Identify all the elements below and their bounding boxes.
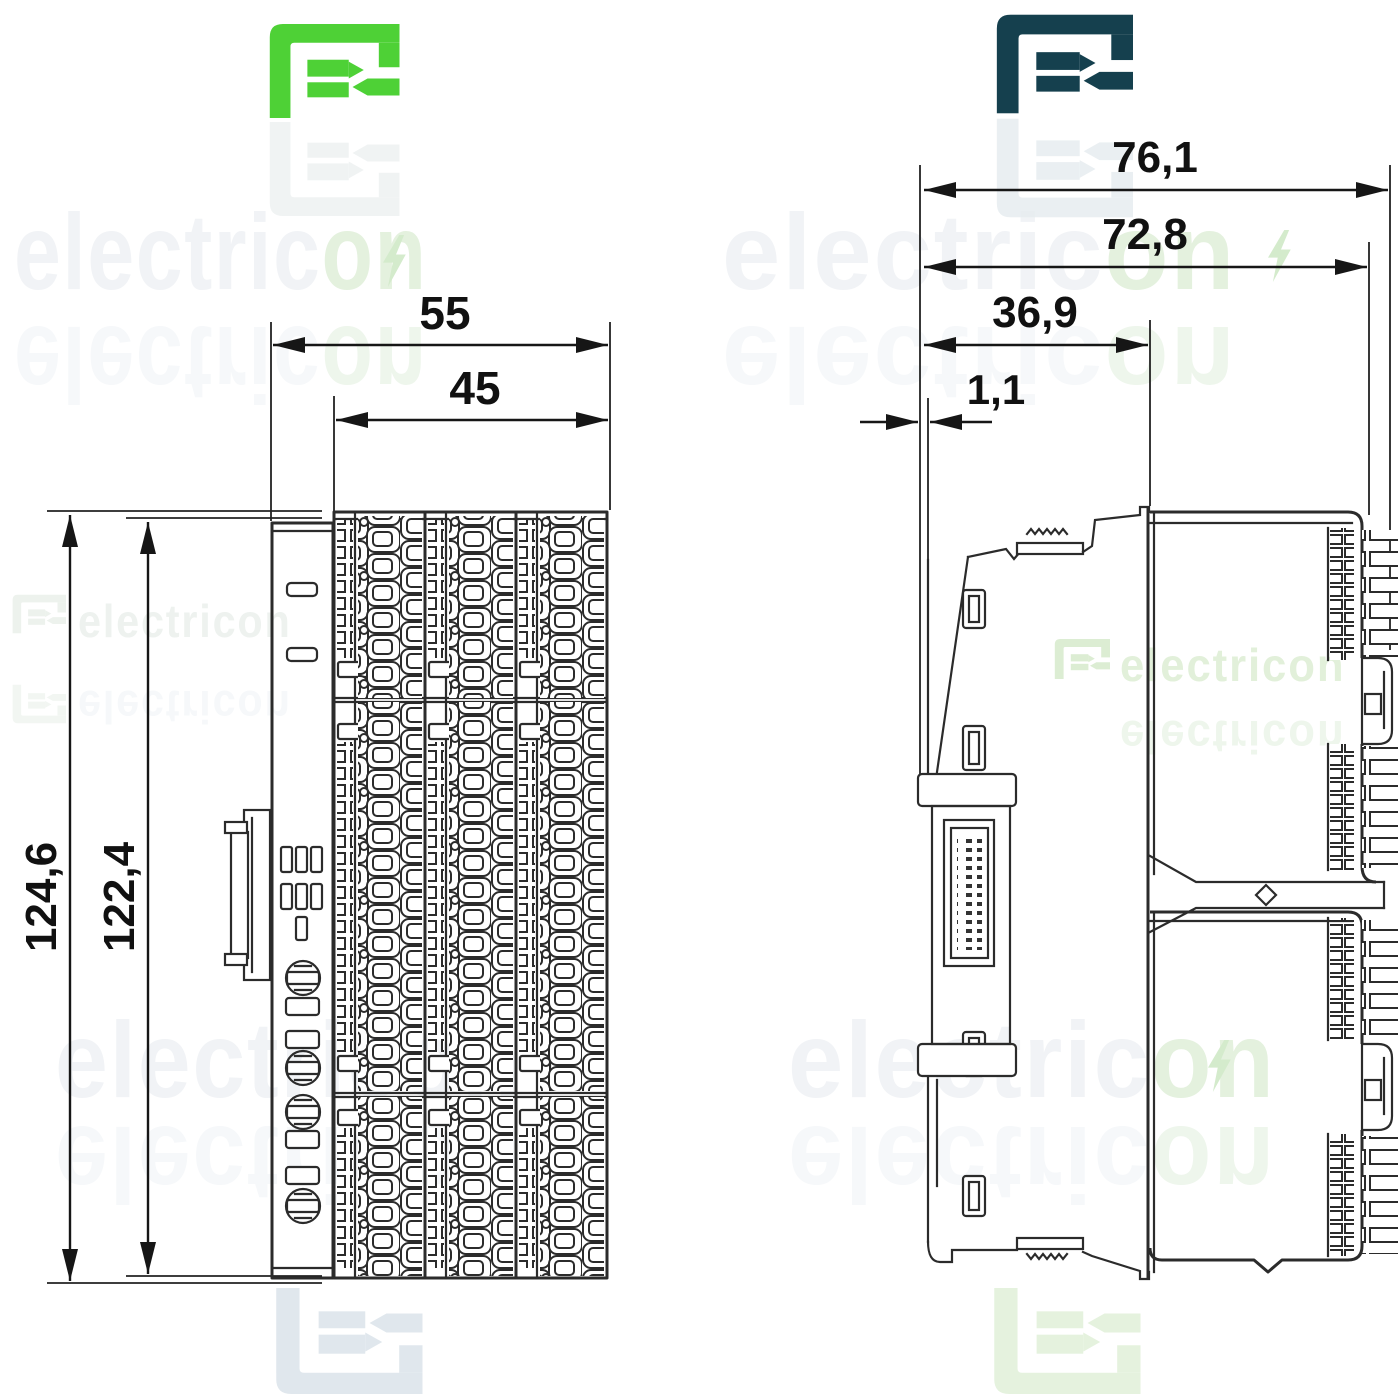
- dimension-depth-front: 36,9: [924, 288, 1148, 345]
- din-clip-lower: [1362, 1044, 1392, 1130]
- terminal-column: [425, 512, 516, 1278]
- dimension-label-1-1: 1,1: [967, 366, 1025, 413]
- dimension-height-inner: 122,4: [95, 522, 148, 1274]
- bus-connector-bracket: [918, 774, 1016, 1076]
- dimension-depth-body: 72,8: [924, 210, 1367, 267]
- dimension-label-55: 55: [419, 287, 470, 339]
- led-indicator-grid: [281, 847, 322, 940]
- dimension-label-45: 45: [449, 362, 500, 414]
- terminal-column: [516, 512, 607, 1278]
- dimension-label-122-4: 122,4: [95, 841, 144, 952]
- panel-slot: [287, 583, 317, 596]
- side-view-drawing: 76,1 72,8 36,9 1,1: [860, 133, 1398, 1280]
- dimension-offset-rear: 1,1: [860, 366, 1025, 422]
- terminal-columns: [334, 512, 607, 1278]
- bus-connector-pins: [957, 836, 982, 950]
- din-rail-bracket: [225, 810, 270, 980]
- dimension-depth-outer: 76,1: [924, 133, 1388, 190]
- din-clip-upper: [1362, 658, 1392, 744]
- terminal-block-lower: [1150, 912, 1398, 1272]
- latch-diamond-hole: [1256, 885, 1276, 905]
- panel-slot: [287, 648, 317, 661]
- terminal-block-upper: [1150, 512, 1398, 882]
- dimension-label-124-6: 124,6: [17, 842, 66, 952]
- test-socket-circles: [286, 961, 320, 1223]
- dimension-label-36-9: 36,9: [992, 288, 1078, 337]
- dimension-width-inner: 45: [336, 362, 608, 420]
- front-view-drawing: 55 45 124,6 122,4: [17, 287, 610, 1283]
- dimension-label-72-8: 72,8: [1102, 210, 1188, 259]
- module-base-panel: [272, 523, 333, 1278]
- terminal-column: [334, 512, 425, 1278]
- dimension-width-outer: 55: [273, 287, 608, 345]
- dimension-height-outer: 124,6: [17, 515, 70, 1281]
- dimension-label-76-1: 76,1: [1112, 133, 1198, 182]
